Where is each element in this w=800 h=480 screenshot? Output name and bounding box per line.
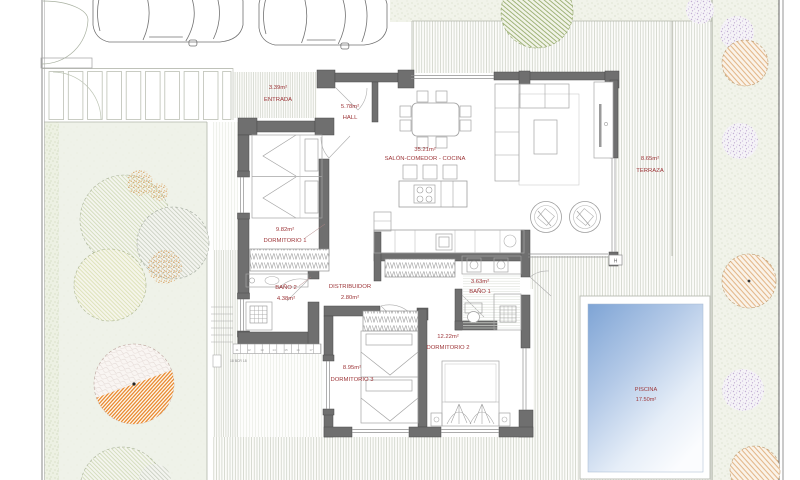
svg-text:H: H [614,259,618,265]
svg-text:16: 16 [296,348,300,352]
svg-text:DORMITORIO 2: DORMITORIO 2 [426,345,469,351]
svg-text:17.50m²: 17.50m² [636,397,657,403]
svg-text:12: 12 [247,348,251,352]
svg-text:15: 15 [284,348,288,352]
svg-text:8.65m²: 8.65m² [641,156,659,162]
svg-text:HALL: HALL [343,115,358,121]
svg-text:TERRAZA: TERRAZA [636,168,664,174]
svg-text:BAÑO 1: BAÑO 1 [469,288,491,295]
svg-text:11: 11 [235,348,238,352]
svg-text:5.78m²: 5.78m² [341,104,359,110]
svg-text:PISCINA: PISCINA [635,387,658,393]
svg-text:DISTRIBUIDOR: DISTRIBUIDOR [329,284,371,290]
svg-text:3.39m²: 3.39m² [269,85,287,91]
svg-text:17: 17 [309,348,313,352]
svg-text:8.95m²: 8.95m² [343,365,361,371]
svg-text:4.38m²: 4.38m² [277,296,295,302]
svg-text:DORMITORIO 1: DORMITORIO 1 [263,238,306,244]
svg-text:DORMITORIO 3: DORMITORIO 3 [330,377,374,383]
svg-text:13: 13 [260,348,264,352]
svg-text:2.80m²: 2.80m² [341,295,359,301]
svg-text:35.21m²: 35.21m² [414,147,436,153]
svg-text:14: 14 [272,348,276,352]
svg-text:9.82m²: 9.82m² [276,227,294,233]
svg-text:BAÑO 2: BAÑO 2 [275,284,297,291]
svg-text:12.22m²: 12.22m² [437,334,459,340]
svg-text:18 BCR 18: 18 BCR 18 [230,359,247,363]
svg-text:3.63m²: 3.63m² [471,279,489,285]
svg-text:SALÓN-COMEDOR - COCINA: SALÓN-COMEDOR - COCINA [385,155,466,162]
svg-text:ENTRADA: ENTRADA [264,97,292,103]
